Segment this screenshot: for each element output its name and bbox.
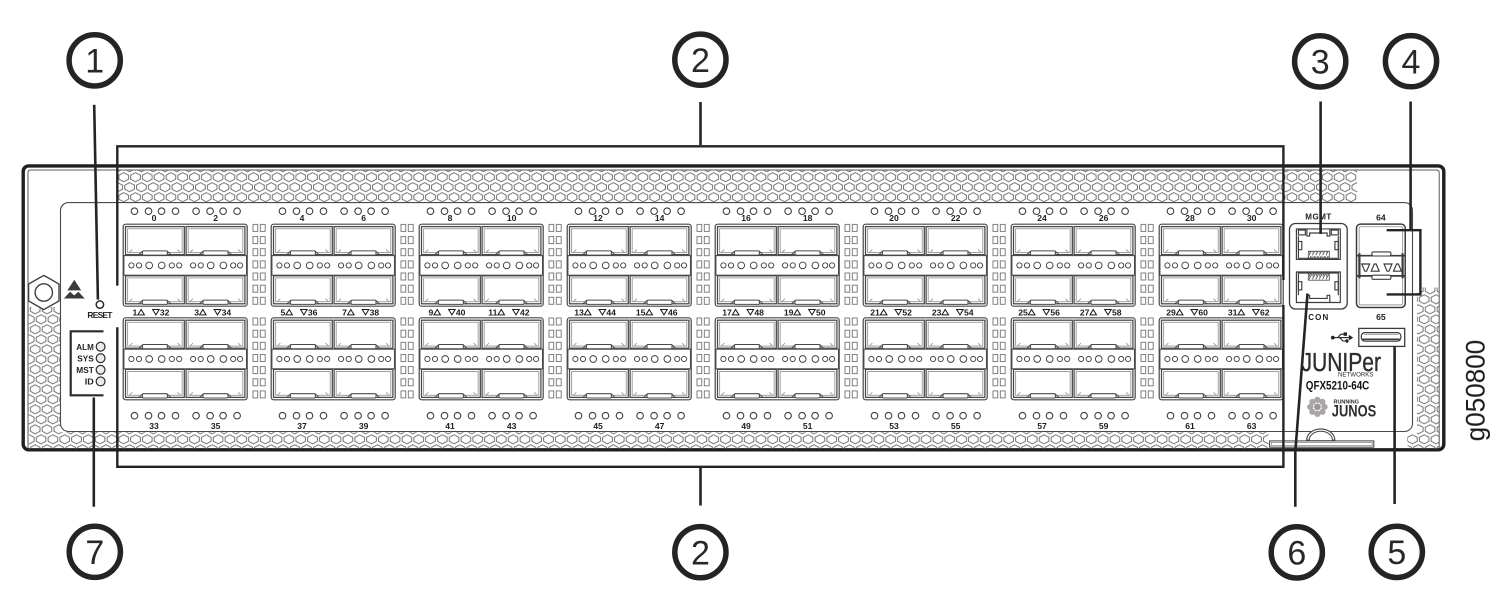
svg-text:33: 33 [149,421,159,431]
svg-text:31: 31 [1228,308,1238,318]
svg-text:43: 43 [507,421,517,431]
svg-text:MGMT: MGMT [1305,212,1331,221]
svg-text:6: 6 [361,213,366,223]
svg-text:3: 3 [194,308,199,318]
svg-text:4: 4 [1402,43,1421,81]
svg-text:45: 45 [593,421,603,431]
svg-text:18: 18 [803,213,813,223]
svg-text:NETWORKS: NETWORKS [1338,372,1374,379]
svg-text:58: 58 [1112,308,1122,318]
svg-text:40: 40 [456,308,466,318]
svg-text:42: 42 [520,308,530,318]
svg-text:7: 7 [342,308,347,318]
svg-text:28: 28 [1185,213,1195,223]
svg-text:25: 25 [1018,308,1028,318]
svg-text:61: 61 [1185,421,1195,431]
svg-text:SYS: SYS [77,353,94,363]
svg-text:ID: ID [85,377,94,387]
svg-text:16: 16 [741,213,751,223]
svg-text:2: 2 [691,534,710,572]
svg-text:2: 2 [691,42,710,80]
svg-text:1: 1 [85,43,104,81]
svg-text:8: 8 [448,213,453,223]
svg-text:QFX5210-64C: QFX5210-64C [1306,380,1370,392]
svg-text:9: 9 [429,308,434,318]
svg-text:32: 32 [160,308,170,318]
svg-text:56: 56 [1050,308,1060,318]
svg-text:48: 48 [754,308,764,318]
svg-text:46: 46 [668,308,678,318]
svg-text:MST: MST [76,365,94,375]
svg-text:62: 62 [1260,308,1270,318]
svg-text:15: 15 [636,308,646,318]
svg-text:19: 19 [784,308,794,318]
svg-text:1: 1 [133,308,138,318]
svg-text:65: 65 [1376,312,1386,322]
svg-text:57: 57 [1037,421,1047,431]
svg-text:47: 47 [655,421,665,431]
svg-text:60: 60 [1198,308,1208,318]
svg-text:3: 3 [1311,44,1330,82]
svg-text:54: 54 [964,308,974,318]
svg-text:6: 6 [1287,535,1306,573]
svg-text:5: 5 [1387,534,1406,572]
svg-text:2: 2 [213,213,218,223]
svg-text:44: 44 [606,308,616,318]
svg-text:5: 5 [281,308,286,318]
svg-text:RESET: RESET [87,310,113,320]
svg-text:22: 22 [951,213,961,223]
svg-text:35: 35 [211,421,221,431]
svg-text:53: 53 [889,421,899,431]
svg-text:64: 64 [1376,213,1386,223]
svg-text:34: 34 [222,308,232,318]
svg-text:21: 21 [870,308,880,318]
svg-text:17: 17 [722,308,732,318]
svg-text:39: 39 [359,421,369,431]
svg-text:24: 24 [1037,213,1047,223]
svg-text:JUNOS: JUNOS [1332,401,1377,420]
svg-text:30: 30 [1247,213,1257,223]
svg-text:12: 12 [593,213,603,223]
svg-text:23: 23 [932,308,942,318]
svg-text:ALM: ALM [76,342,94,352]
svg-text:20: 20 [889,213,899,223]
svg-text:63: 63 [1247,421,1257,431]
svg-text:CON: CON [1308,313,1328,322]
svg-text:29: 29 [1166,308,1176,318]
svg-text:g050800: g050800 [1461,340,1491,442]
svg-text:13: 13 [574,308,584,318]
svg-text:52: 52 [902,308,912,318]
svg-text:26: 26 [1099,213,1109,223]
svg-text:4: 4 [300,213,305,223]
svg-text:27: 27 [1080,308,1090,318]
svg-text:7: 7 [85,534,104,572]
svg-text:49: 49 [741,421,751,431]
svg-text:38: 38 [370,308,380,318]
svg-text:14: 14 [655,213,665,223]
svg-text:10: 10 [507,213,517,223]
svg-text:41: 41 [445,421,455,431]
svg-text:51: 51 [803,421,813,431]
svg-text:55: 55 [951,421,961,431]
svg-text:0: 0 [152,213,157,223]
svg-text:59: 59 [1099,421,1109,431]
svg-text:37: 37 [297,421,307,431]
svg-text:50: 50 [816,308,826,318]
svg-text:36: 36 [308,308,318,318]
svg-text:11: 11 [488,308,497,318]
